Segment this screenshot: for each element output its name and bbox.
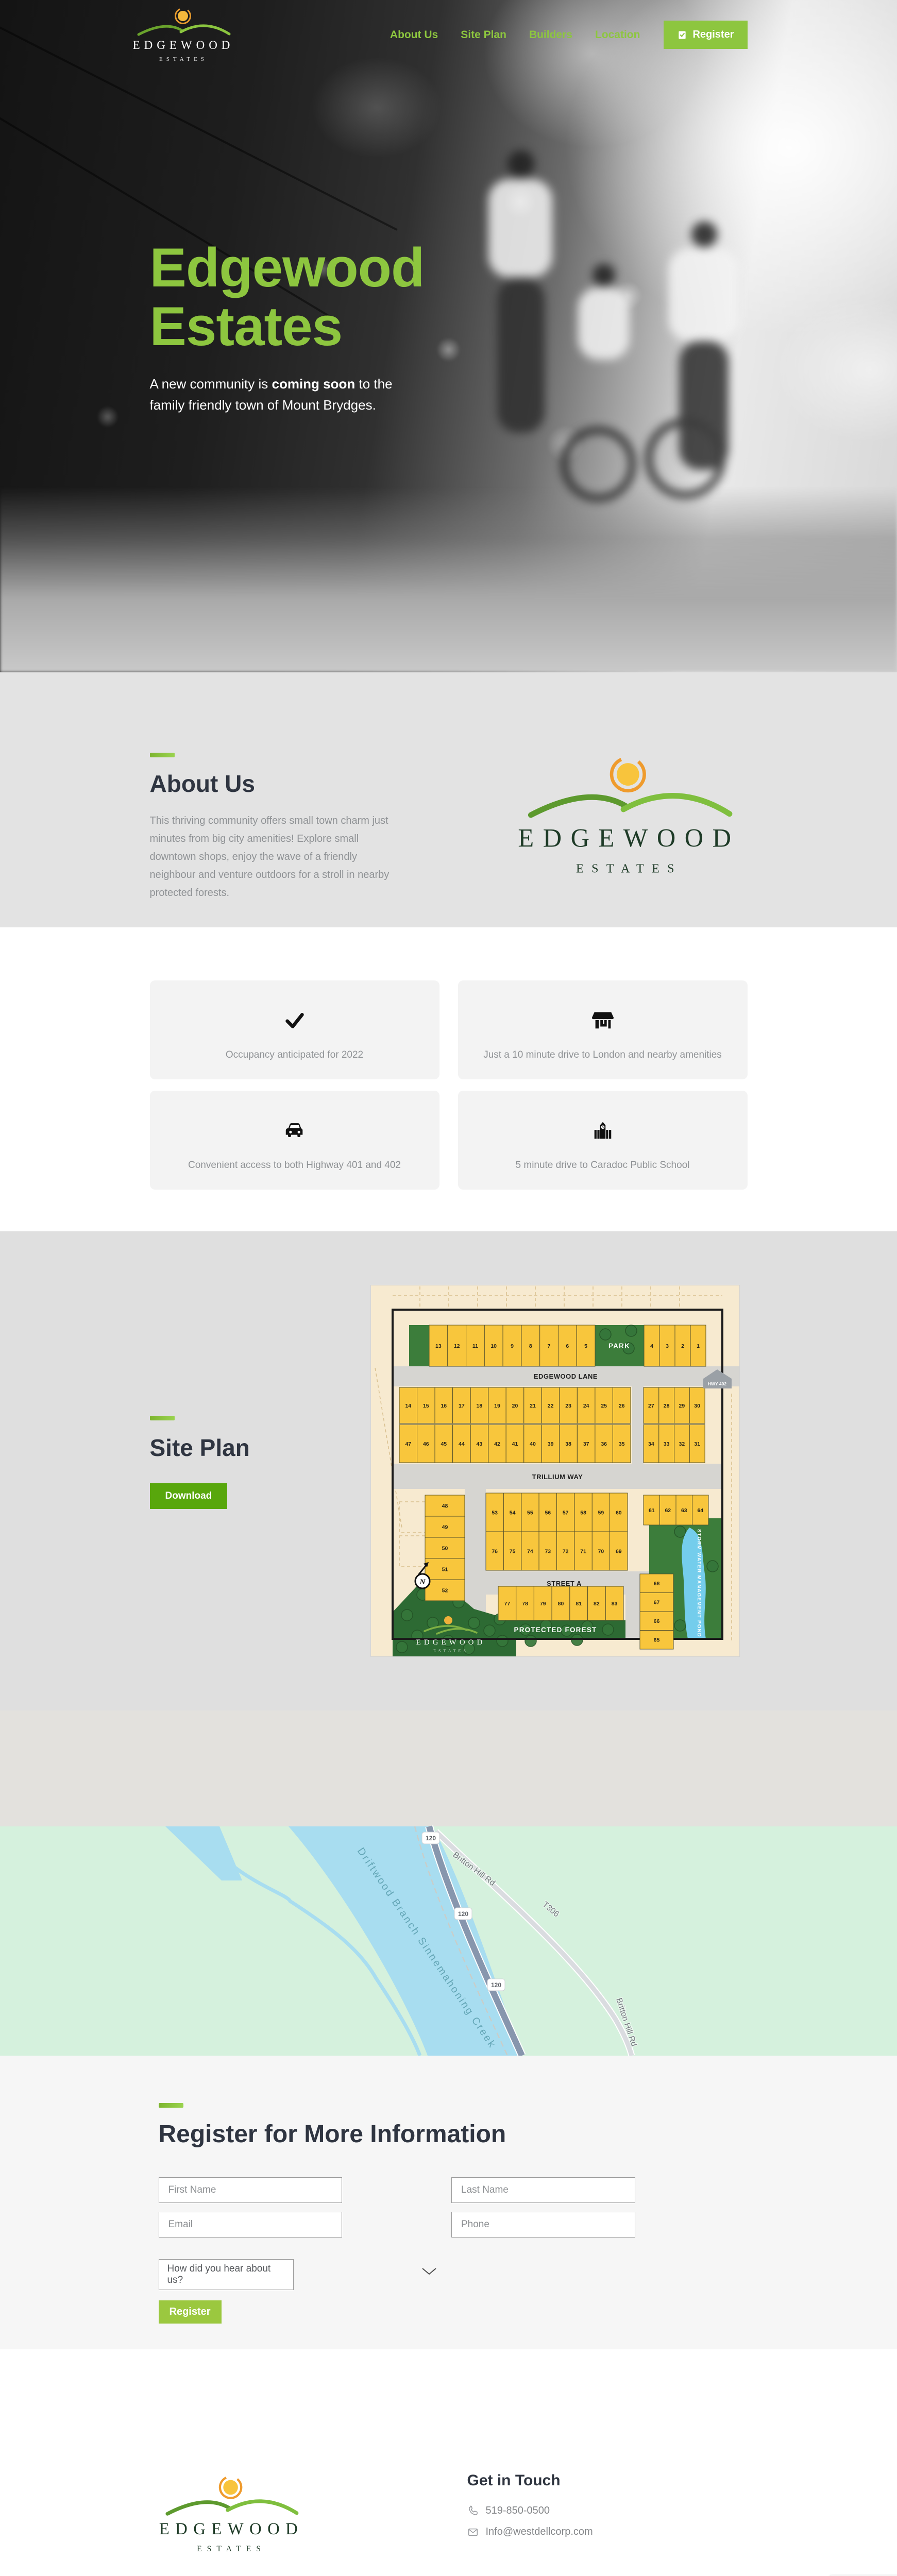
svg-text:23: 23 xyxy=(565,1403,571,1409)
svg-text:25: 25 xyxy=(601,1403,607,1409)
svg-text:3: 3 xyxy=(666,1343,669,1349)
feature-card-highways: Convenient access to both Highway 401 an… xyxy=(150,1091,439,1190)
footer-brand-logo: EDGEWOOD ESTATES xyxy=(150,2472,467,2563)
svg-text:EDGEWOOD: EDGEWOOD xyxy=(416,1638,485,1647)
location-map-section[interactable]: 120 120 120 Britton Hill Rd T306 Britton… xyxy=(0,1710,897,2056)
svg-text:ESTATES: ESTATES xyxy=(159,56,208,62)
svg-text:7: 7 xyxy=(547,1343,550,1349)
svg-text:48: 48 xyxy=(442,1503,448,1509)
svg-text:63: 63 xyxy=(681,1507,687,1514)
store-icon xyxy=(591,1007,615,1033)
svg-text:56: 56 xyxy=(545,1510,551,1516)
svg-text:72: 72 xyxy=(562,1548,568,1554)
nav-about-us[interactable]: About Us xyxy=(390,29,438,41)
svg-text:76: 76 xyxy=(492,1548,498,1554)
svg-text:54: 54 xyxy=(509,1510,515,1516)
svg-text:22: 22 xyxy=(547,1403,553,1409)
register-section: Register for More Information How did yo… xyxy=(0,2056,897,2349)
svg-text:50: 50 xyxy=(442,1545,448,1551)
svg-text:10: 10 xyxy=(490,1343,497,1349)
hear-about-us-select[interactable]: How did you hear about us? xyxy=(159,2259,437,2290)
svg-text:N: N xyxy=(419,1578,426,1586)
accent-bar xyxy=(159,2103,183,2108)
svg-text:83: 83 xyxy=(611,1601,617,1607)
site-plan-section: Site Plan Download STORM WATER MANAGEMEN… xyxy=(0,1231,897,1710)
chevron-down-icon[interactable] xyxy=(421,2267,437,2278)
feature-card-amenities: Just a 10 minute drive to London and nea… xyxy=(458,980,748,1079)
envelope-icon xyxy=(467,2527,479,2538)
svg-text:82: 82 xyxy=(594,1601,600,1607)
svg-text:81: 81 xyxy=(576,1601,582,1607)
register-button[interactable]: Register xyxy=(664,21,747,49)
svg-text:38: 38 xyxy=(565,1441,571,1447)
svg-text:66: 66 xyxy=(653,1618,659,1624)
svg-text:1: 1 xyxy=(697,1343,700,1349)
svg-text:78: 78 xyxy=(522,1601,528,1607)
logo-sun-icon xyxy=(223,2480,238,2495)
nav-site-plan[interactable]: Site Plan xyxy=(461,29,506,41)
svg-text:TRILLIUM WAY: TRILLIUM WAY xyxy=(532,1473,583,1481)
register-form xyxy=(159,2177,635,2238)
about-section: About Us This thriving community offers … xyxy=(0,672,897,927)
svg-text:21: 21 xyxy=(530,1403,536,1409)
svg-text:73: 73 xyxy=(545,1548,551,1554)
features-section: Occupancy anticipated for 2022 Just a 10… xyxy=(0,927,897,1231)
clipboard-check-icon xyxy=(677,30,687,40)
svg-text:120: 120 xyxy=(491,1981,501,1989)
logo-hills-icon xyxy=(167,2502,229,2514)
route-shield: 120 xyxy=(422,1832,439,1844)
svg-text:36: 36 xyxy=(601,1441,607,1447)
svg-text:35: 35 xyxy=(618,1441,624,1447)
footer: EDGEWOOD ESTATES Get in Touch 519-850-05… xyxy=(0,2349,897,2576)
nav-location[interactable]: Location xyxy=(595,29,640,41)
svg-text:6: 6 xyxy=(566,1343,569,1349)
svg-text:27: 27 xyxy=(648,1403,654,1409)
svg-text:ESTATES: ESTATES xyxy=(576,862,682,876)
get-in-touch-heading: Get in Touch xyxy=(467,2472,748,2489)
svg-text:31: 31 xyxy=(694,1441,700,1447)
svg-text:45: 45 xyxy=(441,1441,447,1447)
svg-text:29: 29 xyxy=(679,1403,685,1409)
about-body: This thriving community offers small tow… xyxy=(150,812,402,902)
svg-text:5: 5 xyxy=(584,1343,587,1349)
svg-text:61: 61 xyxy=(648,1507,654,1514)
svg-text:ESTATES: ESTATES xyxy=(197,2545,266,2553)
svg-text:67: 67 xyxy=(653,1600,659,1606)
logo-hills-icon xyxy=(139,26,182,35)
logo-hills-icon xyxy=(531,797,625,815)
svg-text:42: 42 xyxy=(494,1441,500,1447)
svg-text:28: 28 xyxy=(663,1403,669,1409)
email-field[interactable] xyxy=(159,2212,343,2238)
site-plan-heading: Site Plan xyxy=(150,1434,250,1462)
svg-text:70: 70 xyxy=(598,1548,604,1554)
svg-text:24: 24 xyxy=(583,1403,589,1409)
svg-text:37: 37 xyxy=(583,1441,589,1447)
brand-logo[interactable]: EDGEWOOD ESTATES xyxy=(129,5,238,70)
svg-text:STREET A: STREET A xyxy=(547,1580,582,1587)
svg-text:55: 55 xyxy=(527,1510,533,1516)
svg-text:47: 47 xyxy=(405,1441,411,1447)
about-heading: About Us xyxy=(150,770,418,798)
feature-card-school: 5 minute drive to Caradoc Public School xyxy=(458,1091,748,1190)
svg-text:65: 65 xyxy=(653,1637,659,1643)
svg-text:8: 8 xyxy=(529,1343,532,1349)
location-map[interactable]: 120 120 120 Britton Hill Rd T306 Britton… xyxy=(0,1710,897,2056)
main-nav: About Us Site Plan Builders Location Reg… xyxy=(390,21,748,49)
hero-title: Edgewood Estates xyxy=(150,238,748,356)
svg-text:18: 18 xyxy=(476,1403,482,1409)
svg-text:80: 80 xyxy=(557,1601,564,1607)
svg-text:9: 9 xyxy=(511,1343,514,1349)
map-land-area xyxy=(0,1710,897,1826)
svg-text:20: 20 xyxy=(512,1403,518,1409)
svg-text:58: 58 xyxy=(580,1510,586,1516)
svg-text:52: 52 xyxy=(442,1587,448,1594)
svg-text:49: 49 xyxy=(442,1524,448,1530)
svg-text:33: 33 xyxy=(663,1441,669,1447)
phone-link[interactable]: 519-850-0500 xyxy=(486,2505,550,2517)
svg-text:77: 77 xyxy=(504,1601,510,1607)
svg-text:60: 60 xyxy=(615,1510,621,1516)
svg-text:17: 17 xyxy=(459,1403,465,1409)
svg-text:STORM WATER MANAGEMENT POND: STORM WATER MANAGEMENT POND xyxy=(696,1529,702,1637)
svg-text:41: 41 xyxy=(512,1441,518,1447)
route-shield: 120 xyxy=(487,1979,505,1991)
svg-text:51: 51 xyxy=(442,1566,448,1572)
hero-section: EDGEWOOD ESTATES About Us Site Plan Buil… xyxy=(0,0,897,672)
first-name-field[interactable] xyxy=(159,2177,343,2203)
svg-text:71: 71 xyxy=(580,1548,586,1554)
svg-text:69: 69 xyxy=(615,1548,621,1554)
svg-text:68: 68 xyxy=(653,1581,659,1587)
check-icon xyxy=(283,1007,307,1033)
email-row: Info@westdellcorp.com xyxy=(467,2526,748,2538)
svg-text:44: 44 xyxy=(459,1441,465,1447)
accent-bar xyxy=(150,753,175,757)
email-link[interactable]: Info@westdellcorp.com xyxy=(486,2526,593,2538)
last-name-field[interactable] xyxy=(451,2177,635,2203)
site-plan-map[interactable]: STORM WATER MANAGEMENT POND1312111098765… xyxy=(371,1285,739,1656)
svg-text:46: 46 xyxy=(422,1441,429,1447)
route-shield: 120 xyxy=(454,1908,472,1920)
svg-text:120: 120 xyxy=(426,1835,436,1842)
svg-text:16: 16 xyxy=(441,1403,447,1409)
site-plan-svg: STORM WATER MANAGEMENT POND1312111098765… xyxy=(371,1285,739,1656)
svg-text:EDGEWOOD: EDGEWOOD xyxy=(159,2520,303,2538)
svg-text:40: 40 xyxy=(530,1441,536,1447)
car-icon xyxy=(283,1117,307,1143)
svg-text:HWY 402: HWY 402 xyxy=(707,1381,726,1386)
site-header: EDGEWOOD ESTATES About Us Site Plan Buil… xyxy=(0,0,897,70)
logo-sun-icon xyxy=(178,11,188,21)
svg-text:62: 62 xyxy=(665,1507,671,1514)
svg-text:74: 74 xyxy=(527,1548,533,1554)
phone-row: 519-850-0500 xyxy=(467,2505,748,2517)
svg-text:26: 26 xyxy=(618,1403,624,1409)
svg-text:64: 64 xyxy=(697,1507,703,1514)
register-heading: Register for More Information xyxy=(159,2120,748,2148)
svg-text:57: 57 xyxy=(562,1510,568,1516)
svg-text:EDGEWOOD: EDGEWOOD xyxy=(518,823,740,852)
accent-bar xyxy=(150,1416,175,1420)
register-submit-button[interactable]: Register xyxy=(159,2300,222,2324)
svg-text:39: 39 xyxy=(547,1441,553,1447)
svg-text:4: 4 xyxy=(650,1343,653,1349)
phone-field[interactable] xyxy=(451,2212,635,2238)
download-button[interactable]: Download xyxy=(150,1483,228,1509)
svg-text:43: 43 xyxy=(476,1441,482,1447)
nav-builders[interactable]: Builders xyxy=(529,29,572,41)
svg-text:13: 13 xyxy=(435,1343,442,1349)
svg-text:11: 11 xyxy=(472,1343,478,1349)
about-brand-logo: EDGEWOOD ESTATES xyxy=(511,751,748,912)
svg-text:14: 14 xyxy=(405,1403,411,1409)
svg-text:15: 15 xyxy=(422,1403,429,1409)
school-icon xyxy=(591,1117,615,1143)
feature-card-occupancy: Occupancy anticipated for 2022 xyxy=(150,980,439,1079)
svg-text:30: 30 xyxy=(694,1403,700,1409)
phone-icon xyxy=(467,2505,479,2517)
svg-text:53: 53 xyxy=(492,1510,498,1516)
svg-text:2: 2 xyxy=(681,1343,684,1349)
svg-text:19: 19 xyxy=(494,1403,500,1409)
svg-text:59: 59 xyxy=(598,1510,604,1516)
svg-text:12: 12 xyxy=(453,1343,460,1349)
svg-text:75: 75 xyxy=(509,1548,515,1554)
svg-text:PROTECTED FOREST: PROTECTED FOREST xyxy=(514,1626,597,1634)
logo-sun-icon xyxy=(616,763,639,786)
svg-text:34: 34 xyxy=(648,1441,654,1447)
svg-text:ESTATES: ESTATES xyxy=(433,1649,468,1653)
hero-subtitle: A new community is coming soon to the fa… xyxy=(150,374,400,416)
svg-text:32: 32 xyxy=(679,1441,685,1447)
svg-text:120: 120 xyxy=(458,1910,468,1918)
logo-wordmark: EDGEWOOD xyxy=(132,39,234,52)
svg-text:PARK: PARK xyxy=(608,1342,630,1350)
svg-text:EDGEWOOD LANE: EDGEWOOD LANE xyxy=(533,1372,597,1380)
svg-text:79: 79 xyxy=(539,1601,546,1607)
